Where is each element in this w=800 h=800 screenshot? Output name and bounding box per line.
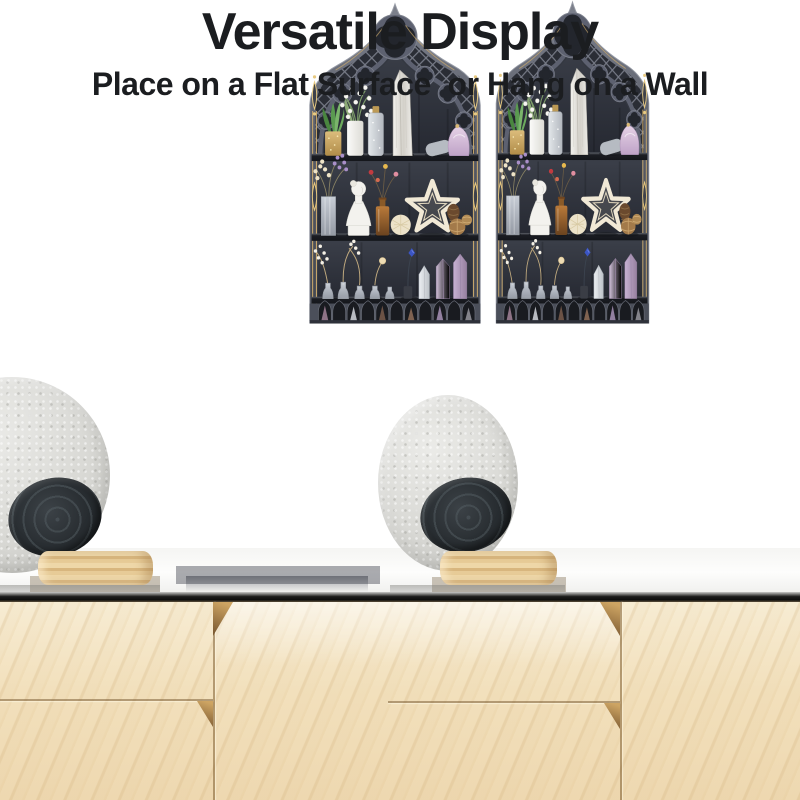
product-graphic: Versatile Display Place on a Flat Surfac…: [0, 0, 800, 800]
wood-tray-rim-middle: [440, 545, 557, 559]
wood-tray-rim-left: [38, 545, 153, 559]
page-subtitle: Place on a Flat Surface or Hang on a Wal…: [0, 66, 800, 103]
shelf-reflection-left: [186, 576, 368, 592]
page-title: Versatile Display: [0, 2, 800, 62]
cabinet-drawer-seam: [0, 699, 213, 701]
countertop-front-edge: [0, 592, 800, 602]
cabinet-door-seam: [620, 602, 622, 800]
cabinet-drawer-seam: [388, 701, 620, 703]
